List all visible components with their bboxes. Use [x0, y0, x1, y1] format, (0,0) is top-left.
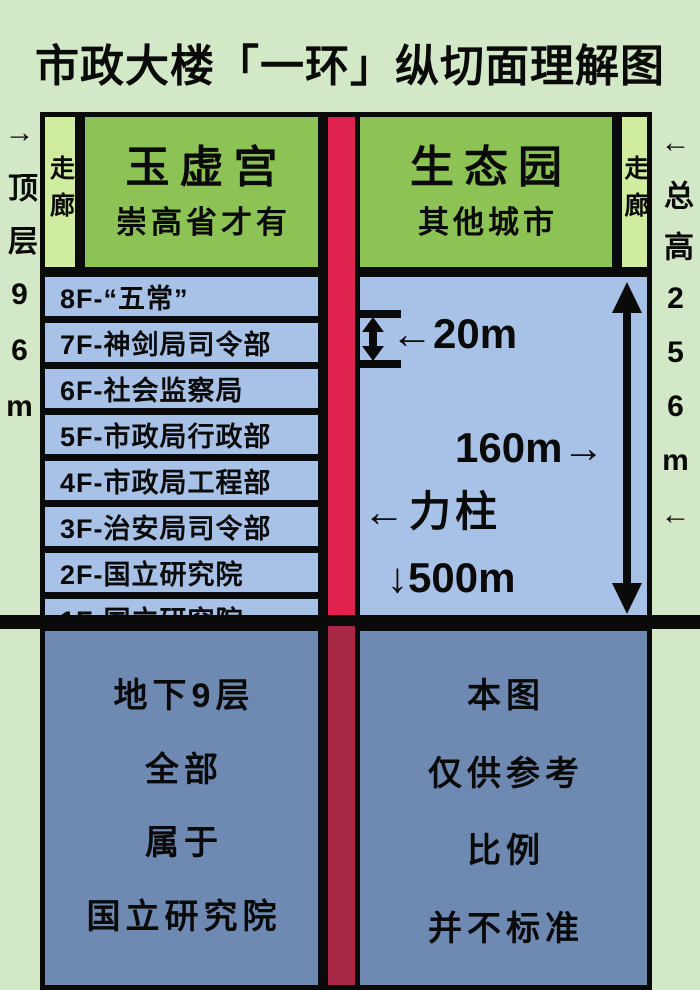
- annotation-500m: ↓500m: [387, 557, 515, 599]
- underground-left-line: 地下9层: [109, 675, 255, 718]
- annotation-pillar: ←力柱: [363, 491, 501, 533]
- floor-row-6f: 6F-社会监察局: [45, 369, 318, 408]
- floor-row-5f: 5F-市政局行政部: [45, 415, 318, 454]
- total-height-label: ←总高256m←: [660, 126, 690, 552]
- floor-list: 8F-“五常” 7F-神剑局司令部 6F-社会监察局 5F-市政局行政部 4F-…: [40, 272, 323, 622]
- right-hall-note: 其他城市: [414, 206, 558, 240]
- top-floor-height-label: →顶层96m: [4, 116, 34, 446]
- diagram-title: 市政大楼「一环」纵切面理解图: [0, 30, 700, 94]
- underground-right-line: 并不标准: [423, 908, 584, 951]
- annotation-160m: 160m→: [455, 427, 604, 469]
- right-hall-header: 生态园 其他城市: [355, 112, 617, 272]
- right-corridor: 走廊: [617, 112, 652, 272]
- left-corridor-label: 走廊: [48, 155, 73, 229]
- floor-row-3f: 3F-治安局司令部: [45, 507, 318, 546]
- section-diagram-page: 市政大楼「一环」纵切面理解图 →顶层96m ←总高256m← 走廊 玉虚宫 崇高…: [0, 0, 700, 990]
- annotation-20m: ←20m: [391, 313, 517, 355]
- underground-left-line: 属于: [140, 822, 223, 865]
- left-hall-header: 玉虚宫 崇高省才有: [80, 112, 323, 272]
- left-hall-note: 崇高省才有: [112, 206, 291, 240]
- underground-left-section: 地下9层 全部 属于 国立研究院: [40, 626, 323, 990]
- vertical-double-arrow-icon: [607, 282, 647, 614]
- floor-row-8f: 8F-“五常”: [45, 277, 318, 316]
- underground-right-line: 仅供参考: [423, 753, 584, 796]
- floor-row-7f: 7F-神剑局司令部: [45, 323, 318, 362]
- floor-row-4f: 4F-市政局工程部: [45, 461, 318, 500]
- right-tower-section: ←20m 160m→ ←力柱 ↓500m: [355, 272, 652, 622]
- underground-right-section: 本图 仅供参考 比例 并不标准: [355, 626, 652, 990]
- underground-left-line: 全部: [140, 749, 223, 792]
- floor-row-2f: 2F-国立研究院: [45, 553, 318, 592]
- underground-left-line: 国立研究院: [82, 896, 282, 939]
- left-corridor: 走廊: [40, 112, 80, 272]
- right-hall-name: 生态园: [400, 144, 572, 192]
- right-corridor-label: 走廊: [622, 155, 647, 229]
- underground-right-line: 本图: [462, 675, 545, 718]
- left-hall-name: 玉虚宫: [116, 144, 288, 192]
- underground-right-line: 比例: [462, 830, 545, 873]
